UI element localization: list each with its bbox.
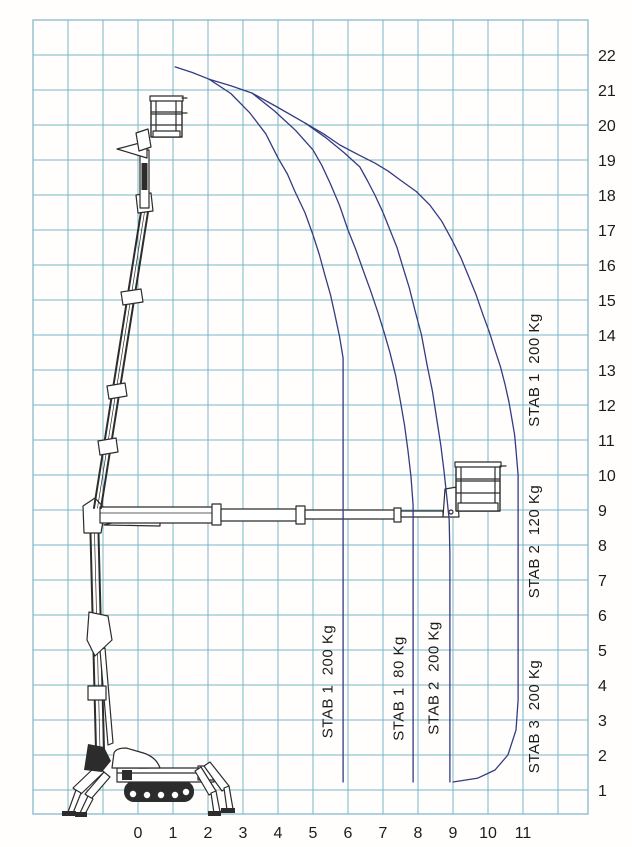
stab-load-label: STAB 2 200 Kg bbox=[425, 621, 442, 734]
lower-boom bbox=[83, 498, 113, 750]
y-tick-label: 13 bbox=[598, 363, 616, 380]
x-tick-label: 3 bbox=[239, 825, 248, 842]
y-tick-label: 16 bbox=[598, 258, 616, 275]
y-tick-label: 3 bbox=[598, 713, 607, 730]
track-undercarriage bbox=[124, 781, 194, 802]
stab-load-label: STAB 1 80 Kg bbox=[390, 636, 407, 741]
x-tick-label: 11 bbox=[515, 825, 532, 842]
top-basket bbox=[150, 96, 187, 137]
y-tick-label: 20 bbox=[598, 118, 616, 135]
working-envelope-diagram: 0123456789101112345678910111213141516171… bbox=[0, 0, 632, 847]
x-tick-label: 4 bbox=[274, 825, 283, 842]
x-tick-label: 7 bbox=[379, 825, 388, 842]
y-tick-label: 9 bbox=[598, 503, 607, 520]
upper-boom bbox=[94, 212, 148, 508]
x-tick-label: 10 bbox=[479, 825, 497, 842]
side-basket bbox=[455, 462, 506, 511]
envelope-curve-4 bbox=[175, 67, 518, 782]
y-tick-label: 11 bbox=[598, 433, 615, 450]
x-tick-label: 9 bbox=[449, 825, 458, 842]
y-tick-label: 19 bbox=[598, 153, 616, 170]
y-tick-label: 22 bbox=[598, 48, 616, 65]
y-tick-label: 1 bbox=[598, 783, 607, 800]
y-tick-label: 17 bbox=[598, 223, 616, 240]
x-tick-label: 1 bbox=[169, 825, 178, 842]
y-tick-label: 12 bbox=[598, 398, 616, 415]
x-tick-label: 6 bbox=[344, 825, 353, 842]
x-tick-label: 8 bbox=[414, 825, 423, 842]
stab-load-label: STAB 1 200 Kg bbox=[526, 313, 543, 426]
y-tick-label: 7 bbox=[598, 573, 607, 590]
y-tick-label: 6 bbox=[598, 608, 607, 625]
horizontal-boom bbox=[100, 487, 459, 526]
y-tick-label: 18 bbox=[598, 188, 616, 205]
x-tick-label: 5 bbox=[309, 825, 318, 842]
y-tick-label: 21 bbox=[598, 83, 616, 100]
y-tick-label: 5 bbox=[598, 643, 607, 660]
stab-load-label: STAB 3 200 Kg bbox=[526, 660, 543, 773]
y-tick-label: 14 bbox=[598, 328, 616, 345]
y-tick-label: 10 bbox=[598, 468, 616, 485]
y-tick-label: 4 bbox=[598, 678, 607, 695]
diagram-svg: 0123456789101112345678910111213141516171… bbox=[0, 0, 632, 847]
y-tick-label: 8 bbox=[598, 538, 607, 555]
stab-load-label: STAB 1 200 Kg bbox=[319, 625, 336, 738]
y-tick-label: 15 bbox=[598, 293, 616, 310]
x-tick-label: 2 bbox=[204, 825, 213, 842]
stab-load-label: STAB 2 120 Kg bbox=[526, 485, 543, 598]
axis-ticks: 0123456789101112345678910111213141516171… bbox=[134, 48, 616, 842]
jib-head bbox=[117, 129, 153, 213]
y-tick-label: 2 bbox=[598, 748, 607, 765]
envelope-curves bbox=[175, 67, 518, 782]
x-tick-label: 0 bbox=[134, 825, 143, 842]
